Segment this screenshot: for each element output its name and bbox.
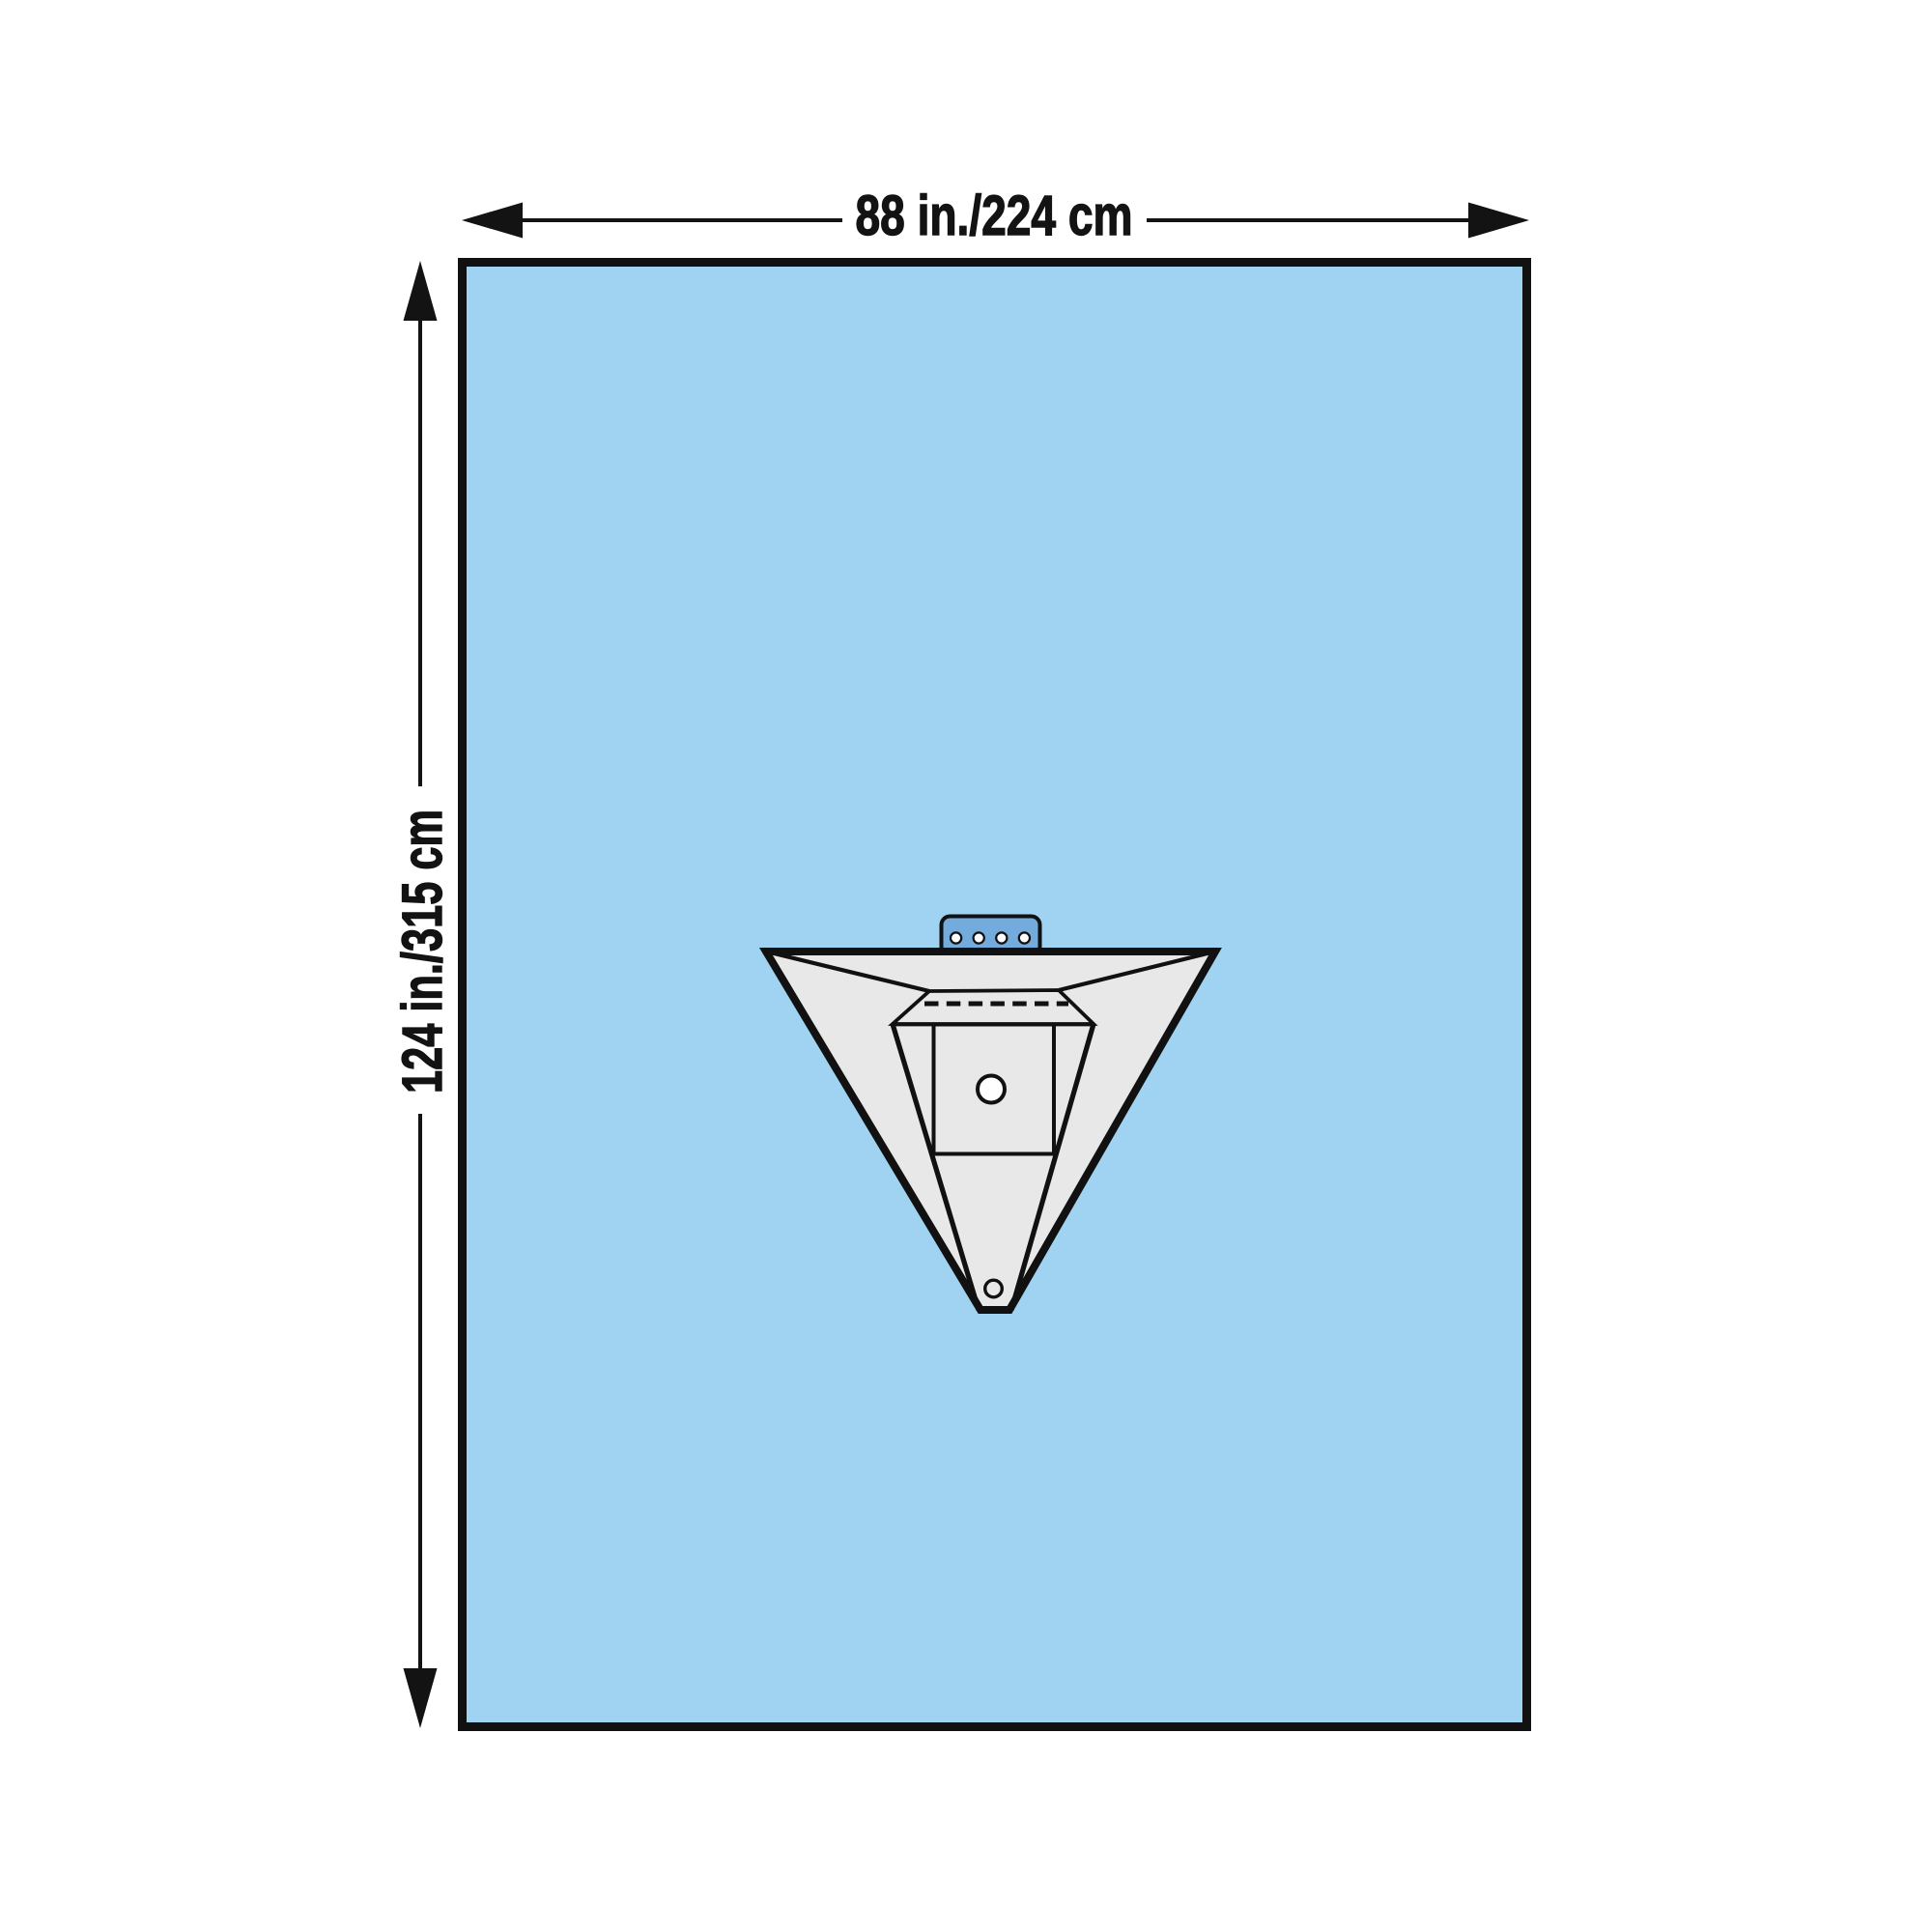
svg-text:124 in./315 cm: 124 in./315 cm (391, 810, 454, 1094)
svg-text:88 in./224 cm: 88 in./224 cm (856, 185, 1133, 247)
